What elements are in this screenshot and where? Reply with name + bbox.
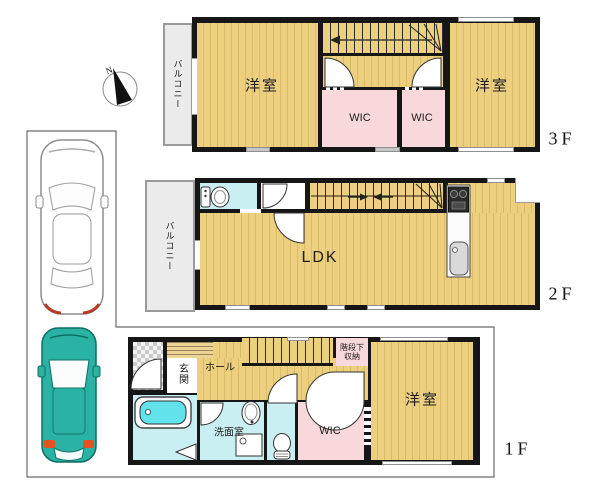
window-3f-bottom-mid <box>375 147 400 152</box>
window-1f-top <box>380 337 448 341</box>
window-2f-bottom-left <box>225 305 250 310</box>
window-3f-top <box>458 17 514 22</box>
hall-label: ホール <box>205 359 235 374</box>
staircase-2f <box>310 183 443 209</box>
ldk-room-2f <box>200 213 535 305</box>
floor-3f-label: 3F <box>548 129 575 150</box>
window-3f-bottom-right <box>458 147 514 152</box>
window-2f-bottom-right <box>367 305 385 310</box>
balcony-door-3f <box>192 58 197 115</box>
under-stair-storage-label: 階段下 収納 <box>340 343 364 361</box>
hall-top-1f <box>213 342 242 358</box>
staircase-1f <box>242 338 333 366</box>
room-west-right-3f-label: 洋室 <box>475 75 509 96</box>
floor-1f-label: 1F <box>504 439 531 460</box>
bathroom-1f <box>133 395 197 460</box>
doorway-2f <box>240 209 261 213</box>
window-2f-top <box>487 178 505 183</box>
wic-left-entry-3f <box>326 87 346 90</box>
window-3f-bottom-left <box>246 147 270 152</box>
ldk-label: LDK <box>301 249 338 267</box>
corner-void-2f <box>515 178 540 203</box>
staircase-3f <box>323 23 443 53</box>
window-2f-bottom-mid <box>327 305 345 310</box>
balcony-3f-label: バルコニー <box>172 59 185 109</box>
wic-left-3f-label: WIC <box>349 112 370 124</box>
genkan-label: 玄関 <box>175 363 190 385</box>
window-1f-top-small <box>287 337 309 341</box>
floorplan-canvas: N <box>0 0 600 502</box>
wic-entry-1f <box>364 407 371 445</box>
room-west-1f-label: 洋室 <box>405 389 439 410</box>
under-stair-storage-line1: 階段下 <box>340 343 364 352</box>
balcony-2f-label: バルコニー <box>164 221 177 271</box>
hall-3f <box>323 56 443 87</box>
toilet-door-area-2f <box>261 183 305 209</box>
floor-2f-label: 2F <box>548 284 575 305</box>
room-west-left-3f-label: 洋室 <box>245 75 279 96</box>
window-1f-bottom <box>382 461 452 465</box>
white-car-icon <box>36 140 108 314</box>
entrance-porch-1f <box>133 342 163 390</box>
compass-north-label: N <box>104 64 114 76</box>
shoe-cabinet-1f <box>167 342 213 358</box>
wic-1f-label: WIC <box>319 425 340 437</box>
floorplan-2f <box>195 178 540 310</box>
washroom-label: 洗面室 <box>214 424 244 439</box>
toilet-room-2f <box>200 183 257 209</box>
teal-car-icon <box>38 328 100 462</box>
wic-right-entry-3f <box>405 87 425 90</box>
toilet-room-1f <box>267 402 295 460</box>
balcony-door-2f <box>195 240 200 270</box>
under-stair-storage-line2: 収納 <box>344 352 360 361</box>
compass-icon: N <box>103 64 137 106</box>
wic-right-3f-label: WIC <box>411 112 432 124</box>
